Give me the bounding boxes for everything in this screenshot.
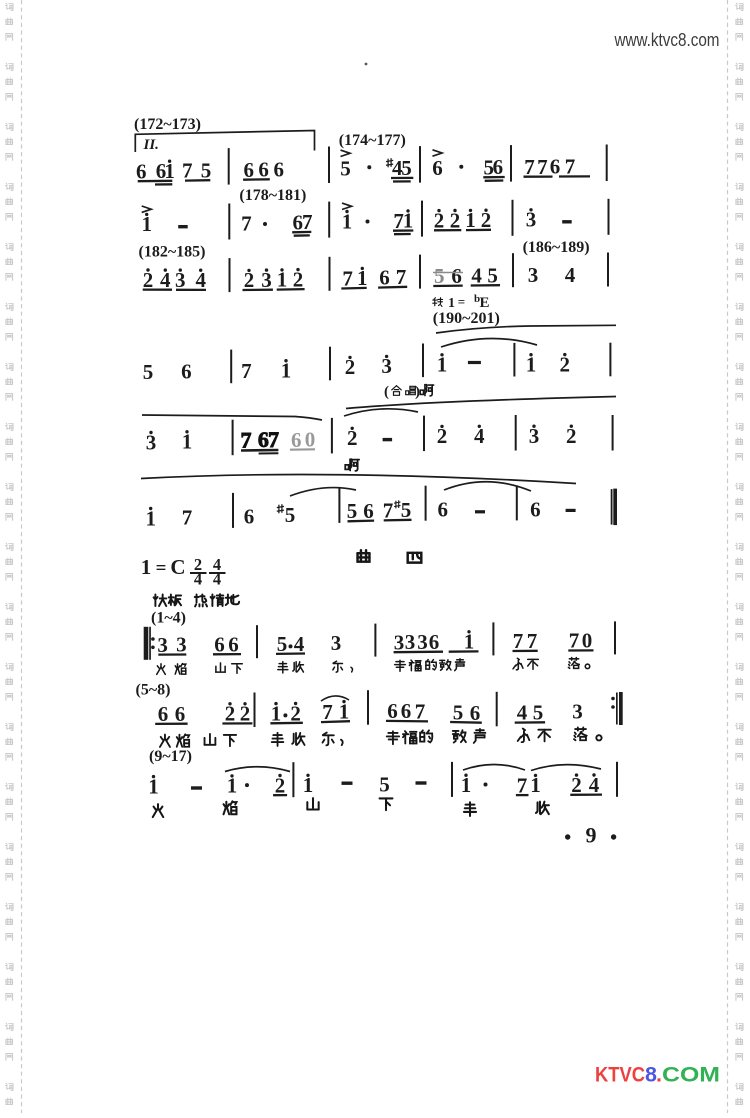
svg-text:(190~201): (190~201) <box>433 310 500 327</box>
svg-text:3: 3 <box>331 631 342 655</box>
svg-text:5: 5 <box>533 701 544 725</box>
svg-text:4: 4 <box>194 570 202 589</box>
svg-text:6: 6 <box>244 505 255 529</box>
svg-text:7: 7 <box>513 629 524 653</box>
svg-text:(9~17): (9~17) <box>149 748 192 765</box>
svg-text:6: 6 <box>379 266 390 290</box>
svg-text:6: 6 <box>136 159 147 183</box>
svg-text:3: 3 <box>394 630 405 654</box>
svg-text:7: 7 <box>537 155 548 179</box>
svg-text:7: 7 <box>527 629 538 653</box>
svg-text:6: 6 <box>243 158 254 182</box>
svg-text:KTVC: KTVC <box>595 1063 645 1087</box>
svg-text:7: 7 <box>302 210 313 234</box>
svg-text:6: 6 <box>181 360 192 384</box>
svg-text:E: E <box>479 295 489 311</box>
svg-text:(172~173): (172~173) <box>134 116 201 133</box>
svg-text:3: 3 <box>572 700 583 724</box>
svg-text:7: 7 <box>182 159 193 183</box>
svg-text:1: 1 <box>141 555 152 579</box>
svg-text:0: 0 <box>582 629 593 653</box>
svg-text:7: 7 <box>342 267 353 291</box>
svg-text:7: 7 <box>268 427 279 452</box>
svg-text:(178~181): (178~181) <box>239 187 306 204</box>
svg-text:5: 5 <box>143 360 154 384</box>
svg-text:3: 3 <box>405 630 416 654</box>
svg-text:7: 7 <box>396 265 407 289</box>
svg-text:II.: II. <box>143 137 159 153</box>
svg-text:6: 6 <box>158 702 169 726</box>
svg-text:7: 7 <box>241 427 252 452</box>
svg-text:4: 4 <box>517 701 528 725</box>
svg-text:5: 5 <box>434 264 445 288</box>
svg-text:7: 7 <box>241 359 252 383</box>
svg-text:3: 3 <box>528 263 539 287</box>
svg-text:www.ktvc8.com: www.ktvc8.com <box>614 29 720 50</box>
svg-text:4: 4 <box>471 264 482 288</box>
svg-text:5: 5 <box>347 499 358 523</box>
svg-text:=: = <box>458 294 465 309</box>
svg-text:6: 6 <box>214 632 225 656</box>
svg-text:1: 1 <box>448 296 455 311</box>
svg-text:9: 9 <box>586 823 597 848</box>
svg-text:6: 6 <box>228 632 239 656</box>
svg-text:7: 7 <box>322 700 333 724</box>
svg-text:(174~177): (174~177) <box>339 132 406 149</box>
svg-text:6: 6 <box>387 699 398 723</box>
svg-text:7: 7 <box>569 629 580 653</box>
svg-text:6: 6 <box>291 428 302 452</box>
svg-text:5: 5 <box>285 503 296 527</box>
svg-text:3: 3 <box>176 633 187 657</box>
svg-text:5: 5 <box>340 156 351 180</box>
svg-text:7: 7 <box>517 773 528 797</box>
svg-text:6: 6 <box>363 499 374 523</box>
svg-text:5: 5 <box>453 700 464 724</box>
svg-text:(186~189): (186~189) <box>523 239 590 256</box>
svg-text:3: 3 <box>417 630 428 654</box>
svg-text:7: 7 <box>182 506 193 530</box>
svg-text:6: 6 <box>175 702 186 726</box>
svg-text:6: 6 <box>530 497 541 521</box>
svg-text:7: 7 <box>241 211 252 235</box>
svg-text:6: 6 <box>451 264 462 288</box>
svg-text:7: 7 <box>565 155 576 179</box>
svg-text:=: = <box>156 558 167 579</box>
svg-text:(: ( <box>384 384 389 400</box>
svg-text:7: 7 <box>383 498 394 522</box>
svg-text:6: 6 <box>493 155 504 179</box>
svg-text:(5~8): (5~8) <box>136 682 171 699</box>
svg-text:5: 5 <box>201 158 212 182</box>
svg-text:4: 4 <box>294 632 305 656</box>
svg-text:): ) <box>415 384 420 400</box>
svg-text:COM: COM <box>662 1063 720 1087</box>
svg-text:6: 6 <box>432 156 443 180</box>
svg-text:5: 5 <box>277 632 288 656</box>
svg-text:6: 6 <box>274 157 285 181</box>
svg-text:6: 6 <box>470 701 481 725</box>
svg-text:7: 7 <box>524 155 535 179</box>
svg-text:6: 6 <box>401 699 412 723</box>
svg-text:5: 5 <box>401 156 412 180</box>
svg-text:(1~4): (1~4) <box>151 610 186 627</box>
svg-text:6: 6 <box>429 630 440 654</box>
svg-text:C: C <box>170 555 185 579</box>
svg-text:6: 6 <box>258 158 269 182</box>
svg-text:6: 6 <box>438 497 449 521</box>
svg-text:7: 7 <box>415 699 426 723</box>
svg-text:6: 6 <box>550 155 561 179</box>
svg-text:5: 5 <box>401 498 412 522</box>
svg-text:5: 5 <box>487 263 498 287</box>
svg-text:3: 3 <box>157 633 168 657</box>
svg-text:4: 4 <box>565 263 576 287</box>
svg-text:0: 0 <box>305 428 316 452</box>
svg-text:5: 5 <box>379 773 390 797</box>
svg-text:(182~185): (182~185) <box>139 244 206 261</box>
svg-text:4: 4 <box>213 570 221 589</box>
